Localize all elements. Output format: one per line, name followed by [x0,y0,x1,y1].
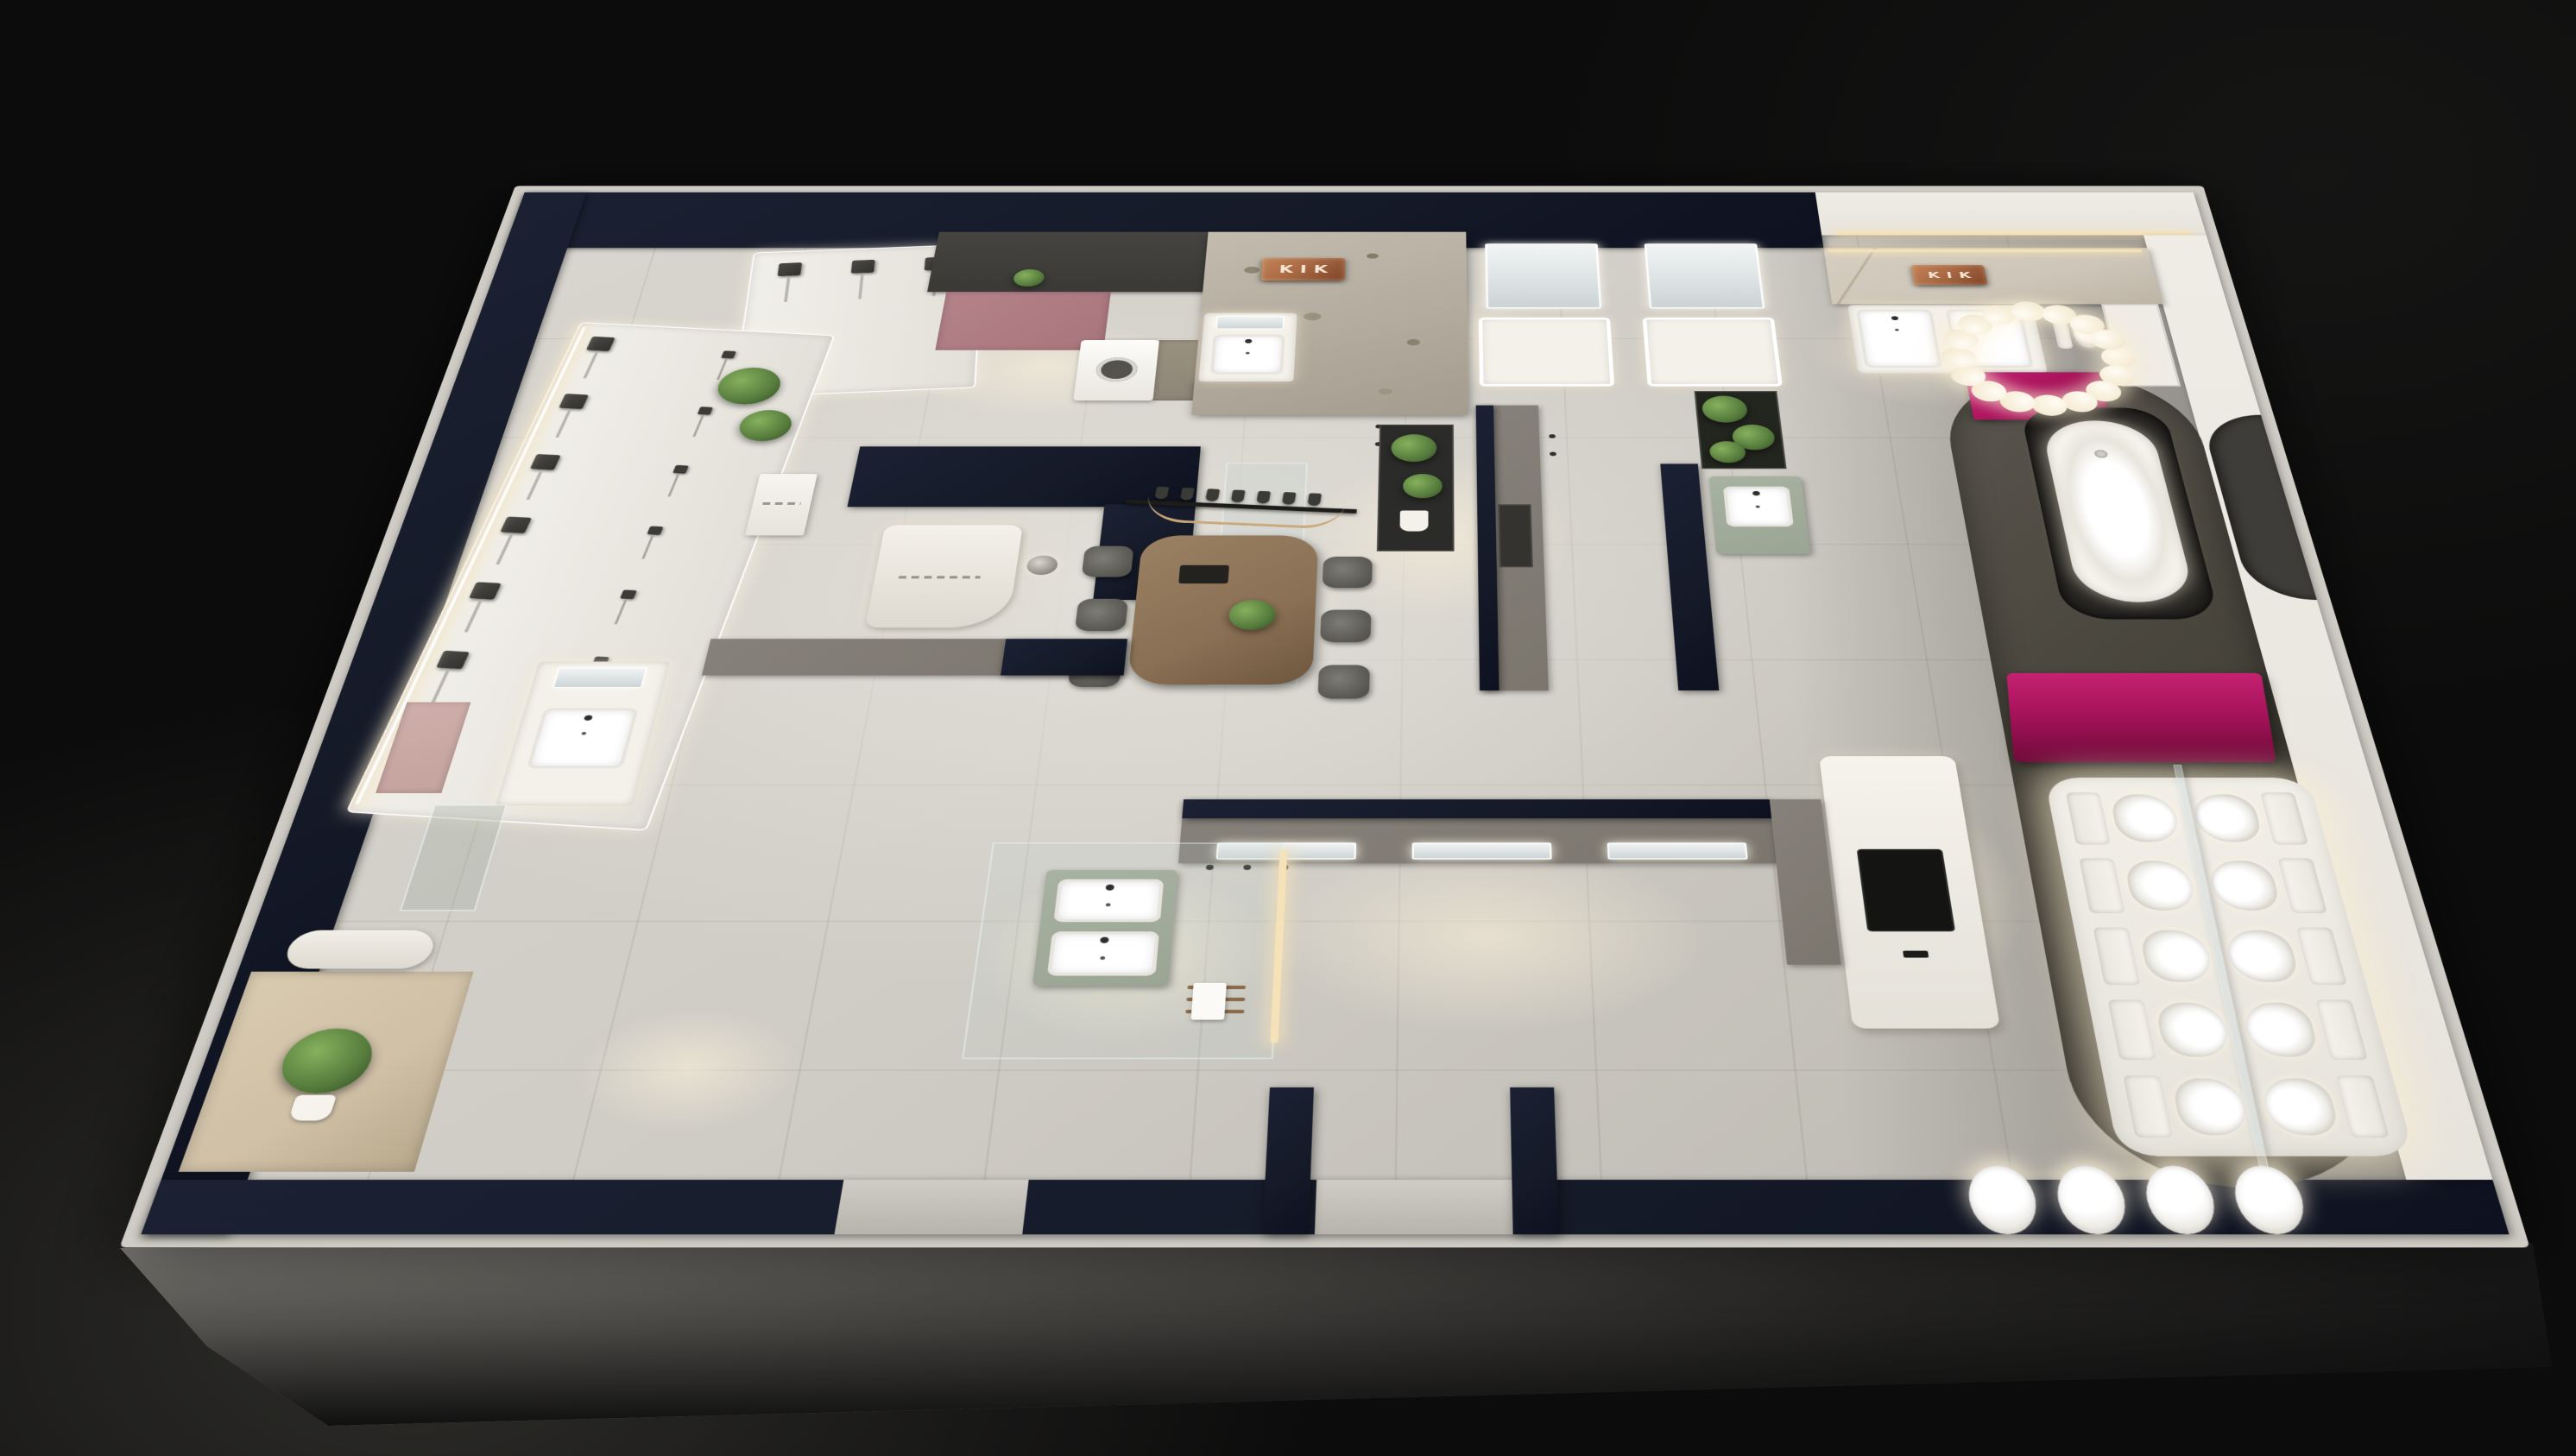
toilet [2105,996,2239,1064]
toilet [2063,789,2188,848]
vanity-basin [527,708,639,768]
trio-mirror [1607,842,1748,860]
tub-drain [2093,450,2108,457]
pendant-planter [1205,488,1220,501]
dining-chair [1320,610,1371,643]
shelf-plant [1403,474,1443,498]
hand-shower [645,463,710,526]
dining-chair [1082,546,1134,577]
sage-basin-unit [1709,476,1811,554]
door-frame-stub [1510,1087,1559,1234]
shower-head [837,257,886,379]
lit-mirror [552,667,648,688]
top-vanity-row [1477,243,1784,395]
trio-mirror [1412,842,1552,860]
marble-cove-led [1828,249,2143,252]
sage-basin [1047,931,1159,975]
brand-sign-marble: KIK [1911,265,1988,285]
hand-shower [671,405,735,465]
curved-bench [281,930,439,969]
sage-basin [1053,879,1164,923]
pendant-planter [1231,490,1246,503]
double-basin [1856,310,1942,368]
wall-basin-row [1964,1166,2311,1235]
vanity-basin [1210,335,1285,375]
toilet [2233,996,2371,1064]
dining-chair [1075,599,1128,631]
pendant-planter [1282,492,1297,505]
floorplan: KIK [119,186,2529,1247]
pedestal-lettering [762,502,801,505]
toilet [2200,854,2331,917]
hand-shower [590,587,660,656]
mid-partition-navy [1001,639,1127,675]
sage-basin [1723,487,1794,526]
desk-lettering [899,576,981,578]
cove-led-strip [1836,232,2192,236]
dining-chair [1323,557,1373,588]
washer-door [1095,357,1139,381]
island-shelf-insert [1498,504,1533,567]
dining-table [1127,535,1319,684]
towel [1190,983,1226,1020]
shower-head [534,392,609,454]
isometric-scene: KIK [0,0,2576,1456]
pendant-planter [1256,491,1271,504]
stone-wall-vanity [1198,313,1297,381]
wall-basin [1964,1166,2041,1235]
bottom-door-opening [1315,1180,1513,1234]
toilet [2090,923,2221,988]
pendant-planter [1307,493,1322,506]
pendant-planter [1180,488,1195,501]
toilet [2216,923,2350,988]
marble-feature-wall: KIK [1823,248,2162,304]
bottom-door-opening [834,1180,1028,1234]
dining-chairs-right [1317,557,1372,699]
shower-head [505,451,583,517]
tv-remote [1903,951,1929,958]
washing-machine [1073,340,1159,400]
door-frame-stub [1262,1087,1314,1234]
vanity-mirror [1215,316,1285,330]
toilet [2183,789,2311,848]
wall-basin [2140,1166,2221,1235]
toilet [2251,1071,2393,1142]
trio-partition-cap [1182,799,1771,818]
toilet [2120,1071,2258,1142]
tv-screen [1859,850,1954,930]
table-tray [1178,565,1229,583]
sage-double-basin [1032,870,1178,986]
shower-head [474,514,553,583]
toilet [2076,854,2205,917]
showroom-render: KIK [0,0,2576,1456]
top-vanity [1637,243,1784,395]
wall-basin [2052,1166,2131,1235]
white-vase [1400,511,1429,532]
pendant-planter [1154,487,1169,500]
hand-shower [618,524,686,589]
shelf-plant [1391,434,1436,462]
dining-chair [1317,665,1369,699]
top-right-white-wall [1815,192,2207,236]
top-vanity [1477,243,1614,395]
shower-head [442,580,524,652]
table-plant [1228,600,1276,630]
magenta-sideboard [2006,673,2276,762]
brand-sign-stone: KIK [1261,258,1346,280]
brand-sign-marble-text: KIK [1920,270,1979,279]
brand-sign-stone-text: KIK [1272,264,1335,274]
laundry-dark-counter [927,232,1212,292]
